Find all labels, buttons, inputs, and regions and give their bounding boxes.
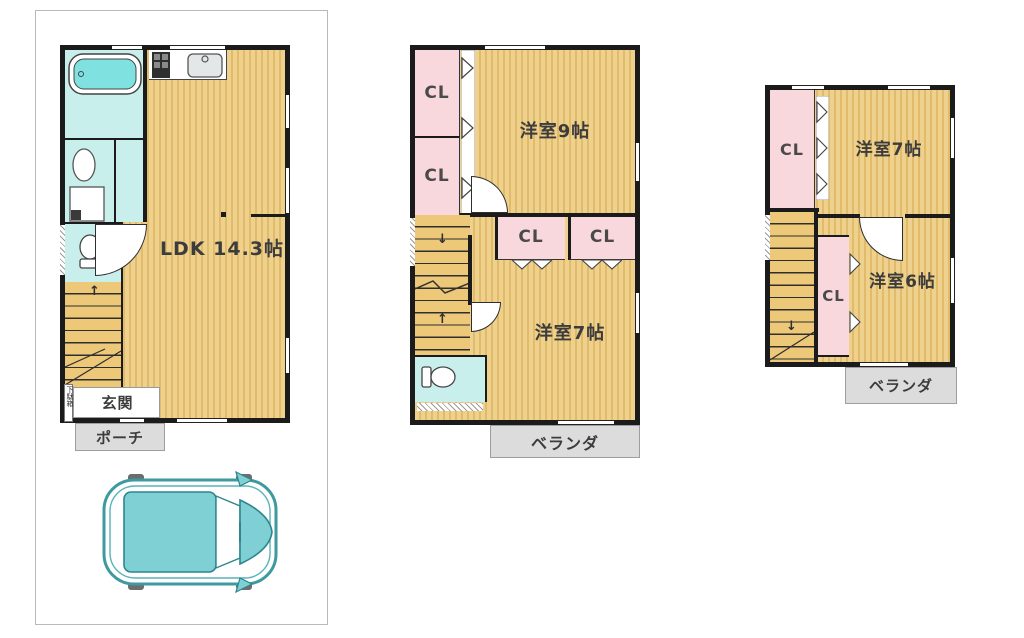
veranda-label: ベランダ — [846, 368, 956, 403]
room-label: 洋室9帖 — [475, 118, 635, 142]
door-swing-arc — [471, 302, 501, 332]
staircase: ↑ — [65, 282, 123, 387]
floor3-plan: CL 洋室7帖 ↓ CL 洋室6帖 — [765, 85, 955, 367]
stairs-down-arrow-icon: ↓ — [437, 233, 448, 246]
floor-plan-page: ↑ 玄関 下駄箱 — [0, 0, 1024, 638]
floor2-plan: CL CL 洋室9帖 CL CL 洋室7帖 ↓ ↑ — [410, 45, 640, 425]
closet-label: CL — [571, 217, 634, 257]
window — [635, 143, 640, 181]
interior-wall — [143, 50, 147, 222]
folding-door-icon — [578, 259, 622, 271]
car-icon — [98, 466, 282, 598]
closet-label: CL — [415, 138, 459, 214]
kitchen-counter — [149, 50, 227, 80]
interior-wall — [905, 214, 950, 218]
stairs-up-arrow-icon: ↑ — [437, 313, 448, 326]
closet-label: CL — [770, 90, 814, 208]
wall-hatch — [60, 225, 65, 275]
window — [792, 85, 824, 90]
washroom — [65, 138, 145, 222]
wall-stub — [251, 214, 285, 217]
bathroom — [65, 50, 145, 138]
window — [950, 258, 955, 303]
wall-hatch — [410, 218, 415, 266]
washroom-partition-wall — [114, 140, 116, 224]
washbasin-icon — [71, 147, 97, 183]
closet-label: CL — [498, 217, 564, 257]
veranda-door — [860, 362, 908, 367]
toilet-icon — [421, 365, 457, 391]
bathtub-icon — [68, 53, 142, 95]
closet: CL — [568, 217, 635, 260]
window — [170, 45, 225, 50]
toilet-room — [415, 355, 487, 402]
room-label: 洋室6帖 — [855, 268, 950, 290]
kitchen-sink-icon — [187, 51, 223, 78]
wall-hatch — [765, 215, 770, 260]
porch: ポーチ — [75, 423, 165, 451]
folding-door-icon — [849, 246, 861, 346]
floor1-plan: ↑ 玄関 下駄箱 — [60, 45, 290, 423]
veranda: ベランダ — [845, 367, 957, 404]
interior-wall — [815, 214, 860, 218]
genkan-label: 玄関 — [74, 388, 161, 417]
closet-label: CL — [415, 50, 459, 136]
window — [635, 293, 640, 333]
door-swing-arc — [859, 217, 903, 261]
window — [177, 418, 227, 423]
closet: CL — [415, 50, 460, 136]
stairs-up-arrow-icon: ↑ — [89, 285, 100, 298]
entrance-genkan: 玄関 — [73, 387, 160, 418]
window — [950, 118, 955, 158]
room-label: 洋室7帖 — [505, 320, 635, 344]
shoe-cabinet-label: 下駄箱 — [65, 386, 75, 407]
stairs-winder-lines — [770, 328, 815, 362]
door-swing-arc — [95, 224, 147, 276]
stairs-winder-lines — [65, 347, 123, 387]
veranda-door — [558, 420, 614, 425]
pillar-dot — [221, 212, 226, 217]
stove-icon — [152, 52, 170, 78]
window — [285, 95, 290, 128]
veranda-label: ベランダ — [491, 426, 639, 457]
veranda: ベランダ — [490, 425, 640, 458]
entrance-door — [120, 418, 144, 423]
room-label: 洋室7帖 — [828, 136, 950, 158]
closet: CL — [770, 90, 815, 208]
closet: CL — [818, 235, 849, 357]
ldk-label: LDK 14.3帖 — [157, 235, 287, 259]
window — [285, 338, 290, 373]
porch-label: ポーチ — [76, 424, 164, 450]
closet: CL — [495, 217, 565, 260]
staircase: ↓ ↑ — [415, 215, 470, 355]
window — [485, 45, 545, 50]
door-swing-arc — [471, 176, 508, 213]
shoe-cabinet: 下駄箱 — [64, 384, 73, 422]
closet-label: CL — [818, 237, 849, 354]
closet: CL — [415, 136, 460, 215]
door-hatch — [417, 403, 483, 411]
stair-wall — [468, 235, 472, 305]
window — [888, 85, 930, 90]
break-line-icon — [415, 277, 470, 297]
washing-machine-icon — [69, 186, 105, 222]
window — [285, 168, 290, 213]
staircase: ↓ — [770, 212, 815, 362]
folding-door-icon — [508, 259, 552, 271]
window — [112, 45, 142, 50]
